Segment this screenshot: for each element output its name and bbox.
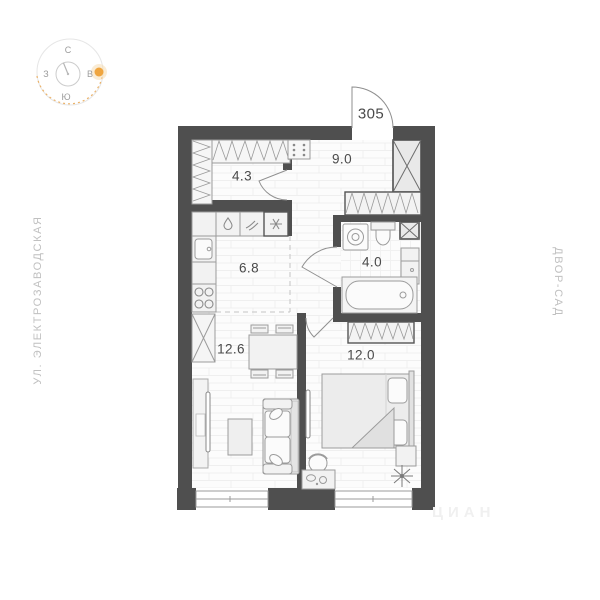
vent-shaft-hallway bbox=[393, 140, 421, 192]
sun-icon bbox=[95, 68, 104, 77]
room-label-kitchen: 6.8 bbox=[239, 261, 259, 276]
compass-south-label: Ю bbox=[61, 92, 70, 102]
room-label-bedroom: 12.0 bbox=[347, 348, 375, 363]
headboard bbox=[409, 371, 414, 451]
bathtub bbox=[342, 277, 417, 313]
kitchen-sink bbox=[192, 236, 216, 262]
tv-bedroom bbox=[306, 390, 310, 438]
street-label-right: ДВОР-САД bbox=[552, 247, 564, 317]
floor-plan-page: 305 4.3 9.0 6.8 4.0 12.6 12.0 С В Ю З УЛ… bbox=[0, 0, 600, 600]
vanity-stool bbox=[309, 454, 327, 472]
tv-living-room bbox=[206, 392, 210, 452]
sofa bbox=[263, 399, 299, 474]
window-living-room bbox=[196, 491, 268, 507]
kitchen-counter bbox=[192, 212, 288, 236]
room-label-bathroom: 4.0 bbox=[362, 255, 382, 270]
vanity-table bbox=[302, 470, 335, 489]
double-bed bbox=[322, 371, 414, 451]
tall-cabinet bbox=[192, 314, 215, 362]
coat-hooks-panel bbox=[288, 140, 310, 159]
apartment-number: 305 bbox=[358, 106, 384, 123]
room-label-living-room: 12.6 bbox=[217, 342, 245, 357]
washing-machine bbox=[343, 224, 368, 250]
room-label-hallway: 9.0 bbox=[332, 152, 352, 167]
wardrobe-bedroom bbox=[348, 322, 414, 343]
kitchen-cabinet bbox=[192, 262, 216, 284]
wardrobe-top-strip bbox=[212, 140, 290, 163]
stove bbox=[192, 284, 216, 312]
wardrobe-left-strip bbox=[192, 140, 212, 204]
window-bedroom bbox=[335, 491, 412, 507]
room-label-entry-wardrobe: 4.3 bbox=[232, 169, 252, 184]
compass-north-label: С bbox=[65, 45, 72, 55]
coffee-table bbox=[228, 419, 252, 455]
watermark: ЦИАН bbox=[432, 504, 495, 521]
compass-west-label: З bbox=[43, 69, 48, 79]
floor-plan-drawing bbox=[0, 0, 600, 600]
pillow bbox=[388, 378, 407, 403]
street-label-left: УЛ. ЭЛЕКТРОЗАВОДСКАЯ bbox=[32, 215, 44, 384]
wardrobe-hallway bbox=[345, 192, 421, 215]
vent-shaft-bathroom bbox=[400, 222, 419, 239]
compass-east-label: В bbox=[87, 69, 93, 79]
nightstand bbox=[396, 446, 416, 466]
